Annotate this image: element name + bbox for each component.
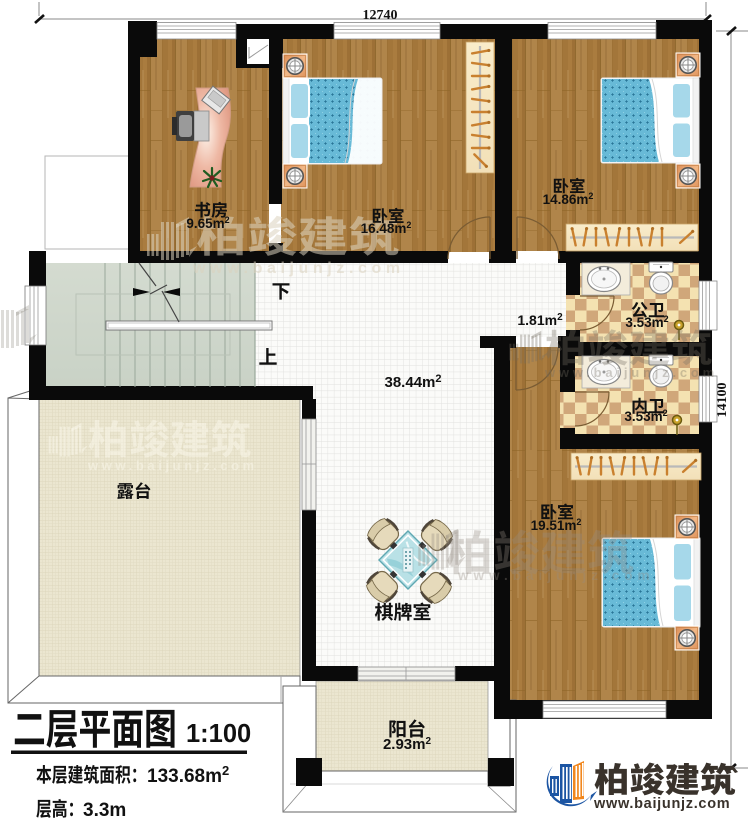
svg-text:www.baijunjz.com: www.baijunjz.com [457, 568, 655, 583]
svg-text:19.51m2: 19.51m2 [531, 517, 582, 533]
svg-text:www.baijunjz.com: www.baijunjz.com [544, 365, 718, 380]
svg-text:www.baijunjz.com: www.baijunjz.com [192, 260, 405, 277]
svg-text:3.3m: 3.3m [83, 800, 126, 821]
svg-text:www.baijunjz.com: www.baijunjz.com [593, 796, 730, 812]
svg-text:9.65m2: 9.65m2 [186, 215, 229, 231]
svg-text:14.86m2: 14.86m2 [543, 191, 594, 207]
svg-text:16.48m2: 16.48m2 [361, 220, 412, 236]
svg-text:1.81m2: 1.81m2 [517, 312, 563, 328]
svg-text:3.53m2: 3.53m2 [624, 408, 667, 424]
svg-text:3.53m2: 3.53m2 [625, 314, 668, 330]
svg-text:38.44m2: 38.44m2 [385, 373, 442, 391]
svg-text:2.93m2: 2.93m2 [383, 736, 432, 753]
svg-text:www.baijunjz.com: www.baijunjz.com [87, 458, 258, 473]
svg-text:12740: 12740 [363, 8, 398, 23]
svg-text:133.68m2: 133.68m2 [147, 763, 229, 787]
svg-text:1:100: 1:100 [186, 720, 251, 748]
